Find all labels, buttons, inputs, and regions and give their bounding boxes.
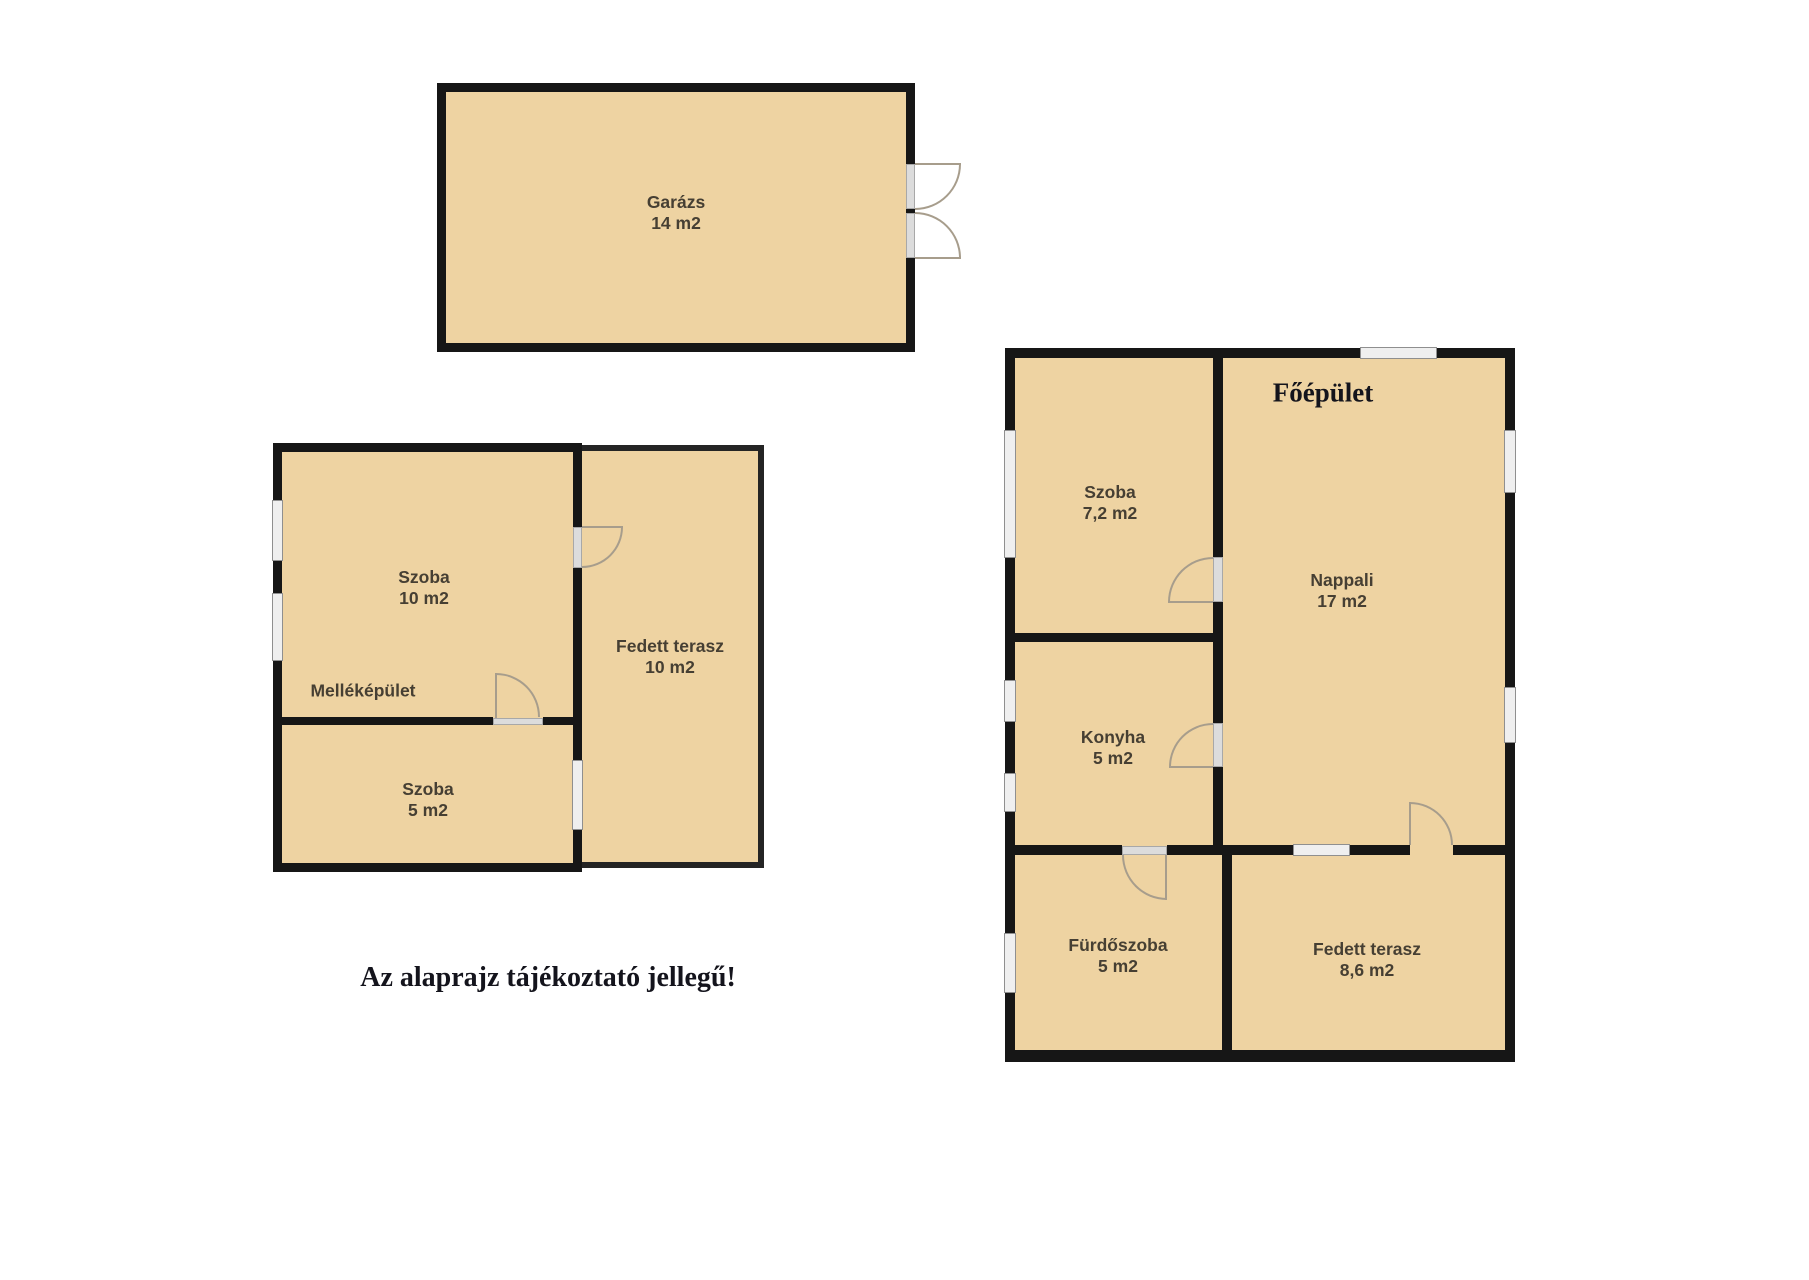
wall: [273, 863, 582, 872]
wall: [1222, 845, 1232, 1062]
room-name: Nappali: [1310, 570, 1373, 591]
wall: [1005, 633, 1223, 642]
wall: [273, 443, 282, 500]
door-leaf: [1165, 855, 1167, 900]
wall: [1505, 348, 1515, 430]
window: [272, 593, 283, 661]
room-name: Konyha: [1081, 727, 1145, 748]
window: [1004, 430, 1016, 558]
wall: [1005, 348, 1360, 358]
door-leaf: [495, 673, 497, 718]
disclaimer-note: Az alaprajz tájékoztató jellegű!: [360, 962, 736, 994]
door-leaf: [915, 163, 961, 165]
door-threshold: [1122, 846, 1167, 855]
wall: [1453, 845, 1515, 855]
door-leaf: [915, 257, 961, 259]
wall: [573, 830, 582, 872]
wall: [1213, 348, 1223, 557]
door-leaf: [582, 526, 623, 528]
wall: [437, 83, 446, 352]
door-threshold: [493, 718, 543, 725]
room-area: 10 m2: [398, 588, 450, 609]
wall: [1005, 993, 1015, 1062]
room-label-nappali: Nappali 17 m2: [1310, 570, 1373, 612]
wall: [582, 862, 764, 868]
room-name: Fedett terasz: [616, 636, 724, 657]
wall: [906, 83, 915, 164]
room-name: Fedett terasz: [1313, 939, 1421, 960]
window: [1004, 933, 1016, 993]
wall: [1005, 558, 1015, 680]
room-name: Fürdőszoba: [1068, 935, 1167, 956]
wall: [1213, 602, 1223, 723]
wall: [437, 83, 915, 92]
window: [1360, 347, 1437, 359]
wall: [1350, 845, 1410, 855]
room-label-garage: Garázs 14 m2: [647, 192, 705, 234]
wall: [1505, 743, 1515, 1062]
floor-plan: Garázs 14 m2 Szoba 10 m2 Melléképület Sz…: [0, 0, 1809, 1280]
room-area: 17 m2: [1310, 591, 1373, 612]
wall: [906, 258, 915, 352]
building-name: Melléképület: [310, 681, 415, 702]
wall: [582, 445, 764, 451]
room-area: 7,2 m2: [1083, 503, 1137, 524]
room-area: 14 m2: [647, 213, 705, 234]
wall: [573, 443, 582, 527]
room-name: Szoba: [398, 567, 450, 588]
room-name: Szoba: [402, 779, 454, 800]
window: [272, 500, 283, 561]
door-leaf: [1168, 601, 1213, 603]
door-threshold: [906, 213, 915, 258]
room-label-furdoszoba: Fürdőszoba 5 m2: [1068, 935, 1167, 977]
wall: [1005, 348, 1015, 430]
room-area: 5 m2: [1081, 748, 1145, 769]
room-label-konyha: Konyha 5 m2: [1081, 727, 1145, 769]
door-leaf: [1409, 802, 1411, 845]
wall: [1005, 722, 1015, 773]
wall: [1005, 845, 1122, 855]
building-label-outbuilding: Melléképület: [310, 681, 415, 702]
door-threshold: [1213, 557, 1223, 602]
wall: [1005, 812, 1015, 933]
door-threshold: [1213, 723, 1223, 767]
window: [1004, 680, 1016, 722]
wall: [437, 343, 915, 352]
wall: [273, 443, 582, 452]
door-threshold: [573, 527, 582, 568]
wall: [1213, 767, 1223, 855]
room-label-szoba-10: Szoba 10 m2: [398, 567, 450, 609]
window: [1004, 773, 1016, 812]
window: [1504, 430, 1516, 493]
window: [1504, 687, 1516, 743]
wall: [273, 561, 282, 593]
door-arc: [915, 164, 961, 210]
room-area: 5 m2: [402, 800, 454, 821]
room-area: 5 m2: [1068, 956, 1167, 977]
room-area: 10 m2: [616, 657, 724, 678]
wall: [1505, 493, 1515, 687]
wall: [758, 445, 764, 868]
window: [572, 760, 583, 830]
room-area: 8,6 m2: [1313, 960, 1421, 981]
window: [1293, 844, 1350, 856]
room-name: Szoba: [1083, 482, 1137, 503]
wall: [543, 717, 582, 725]
wall: [1437, 348, 1515, 358]
wall: [273, 661, 282, 863]
room-label-szoba-5: Szoba 5 m2: [402, 779, 454, 821]
wall: [273, 717, 493, 725]
wall: [1005, 1050, 1515, 1062]
door-arc: [915, 212, 961, 258]
room-label-szoba-72: Szoba 7,2 m2: [1083, 482, 1137, 524]
wall: [573, 568, 582, 760]
building-label-main: Főépület: [1273, 378, 1374, 409]
room-label-fedett-terasz-10: Fedett terasz 10 m2: [616, 636, 724, 678]
door-leaf: [1169, 766, 1213, 768]
room-label-fedett-terasz-86: Fedett terasz 8,6 m2: [1313, 939, 1421, 981]
room-name: Garázs: [647, 192, 705, 213]
door-threshold: [906, 164, 915, 209]
